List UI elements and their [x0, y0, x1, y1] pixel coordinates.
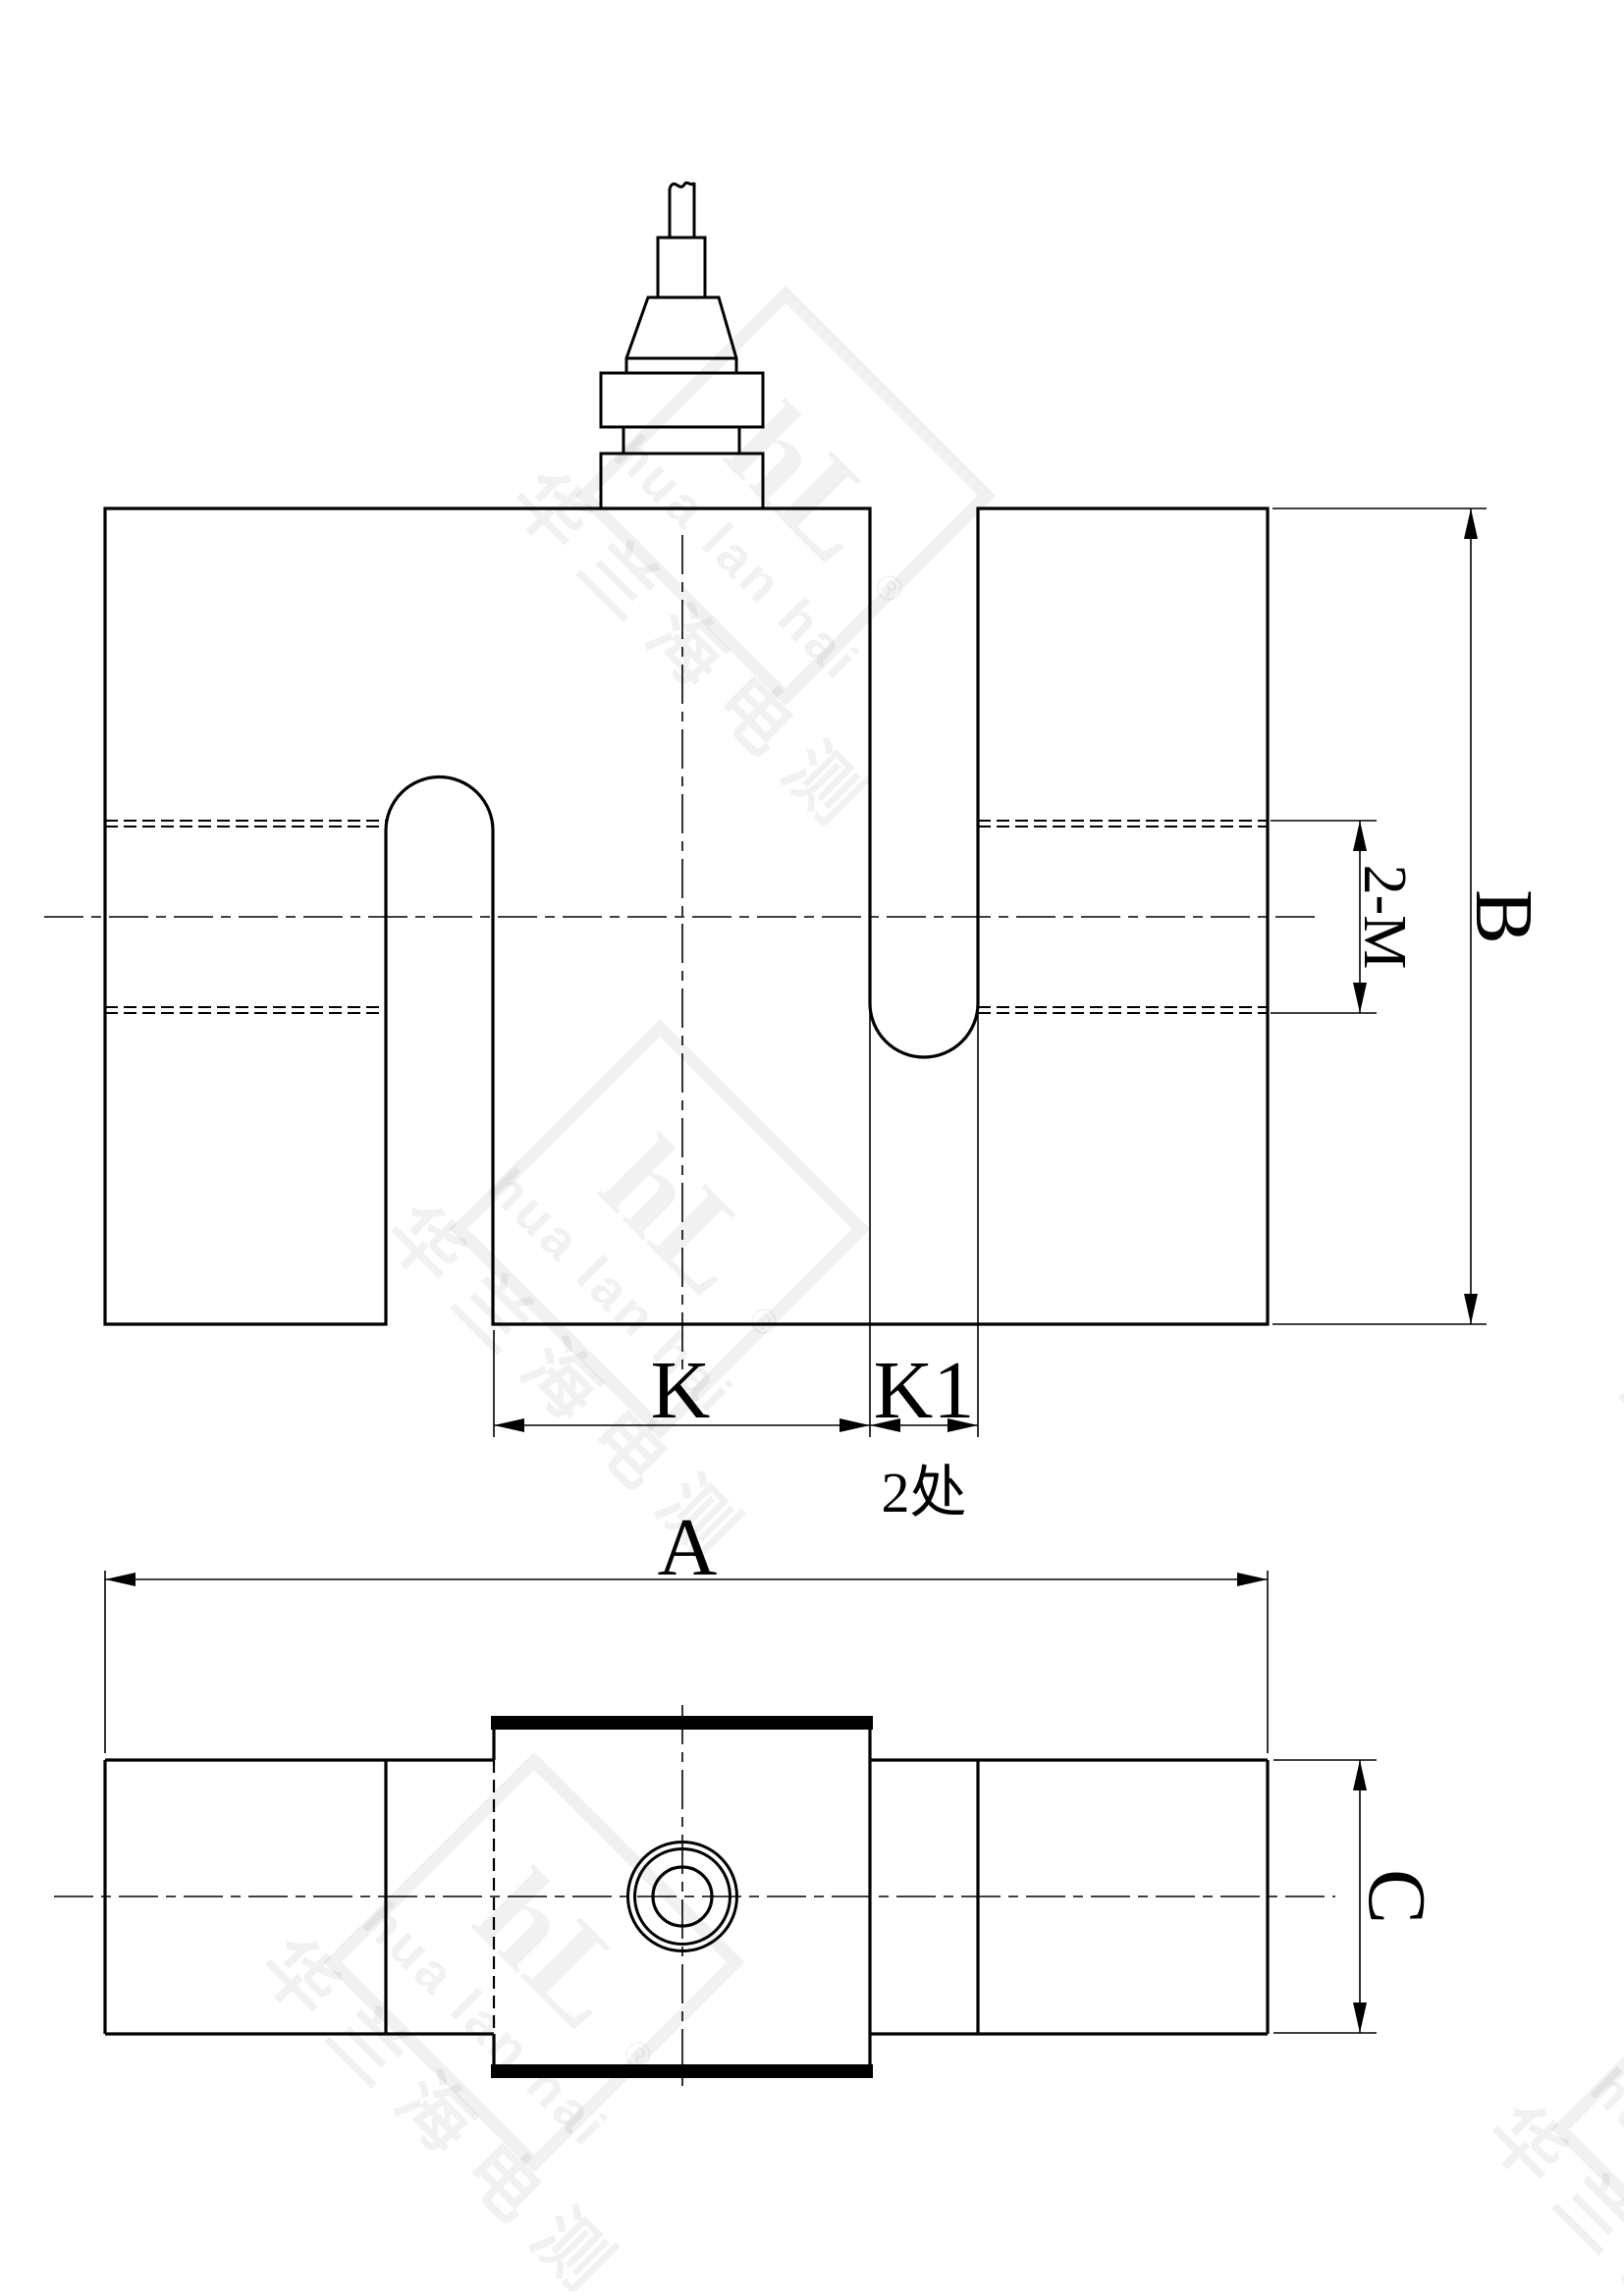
cover-plate-bottom: [491, 2064, 873, 2078]
connector-neck: [658, 238, 705, 297]
dim-label-B: B: [1458, 889, 1549, 944]
watermark-cluster: hL hua lan hai 华兰海电测: [1471, 1894, 1624, 2296]
dim-label-A: A: [658, 1502, 718, 1593]
dim-label-K1: K1: [874, 1345, 975, 1436]
dim-label-C: C: [1351, 1869, 1442, 1924]
cable-break-icon: [670, 183, 694, 188]
watermark-cluster: hL ® hua lan hai 华兰海电测: [244, 1727, 839, 2296]
watermark-pattern: hL ® hua lan hai 华兰海电测 hL ® hua lan hai …: [244, 260, 1624, 2296]
dimension-A: A: [105, 1502, 1268, 1753]
drawing-page: hL ® hua lan hai 华兰海电测 hL ® hua lan hai …: [0, 0, 1624, 2296]
dim-label-thread: 2-M: [1351, 865, 1418, 970]
dim-label-K: K: [651, 1345, 711, 1436]
watermark-cluster: hL ® hua lan hai 华兰海电测: [369, 993, 965, 1589]
watermark-cluster: 华兰海电测: [1597, 1160, 1624, 1756]
watermark-chinese: 华兰海电测: [1597, 1356, 1624, 1755]
cover-plate-top: [491, 1716, 873, 1730]
top-view: C: [54, 1705, 1442, 2091]
engineering-drawing: hL ® hua lan hai 华兰海电测 hL ® hua lan hai …: [0, 0, 1624, 2296]
watermark-cluster: hL ® hua lan hai 华兰海电测: [495, 260, 1091, 856]
note-2-places: 2处: [881, 1461, 966, 1524]
